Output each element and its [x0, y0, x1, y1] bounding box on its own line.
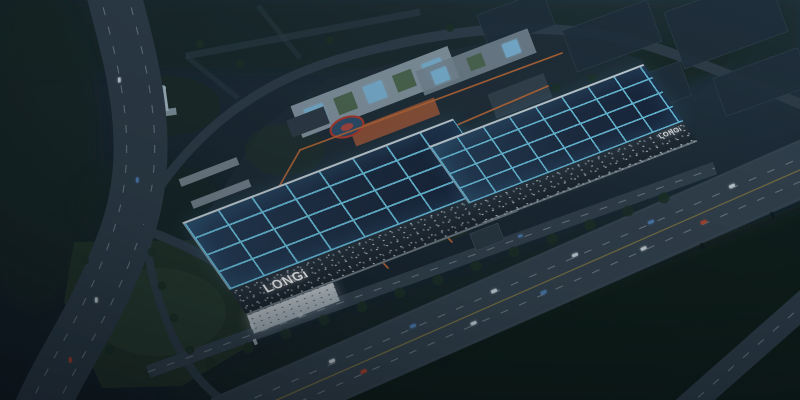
aerial-campus-rendering: LONGi LONGi	[0, 0, 800, 400]
